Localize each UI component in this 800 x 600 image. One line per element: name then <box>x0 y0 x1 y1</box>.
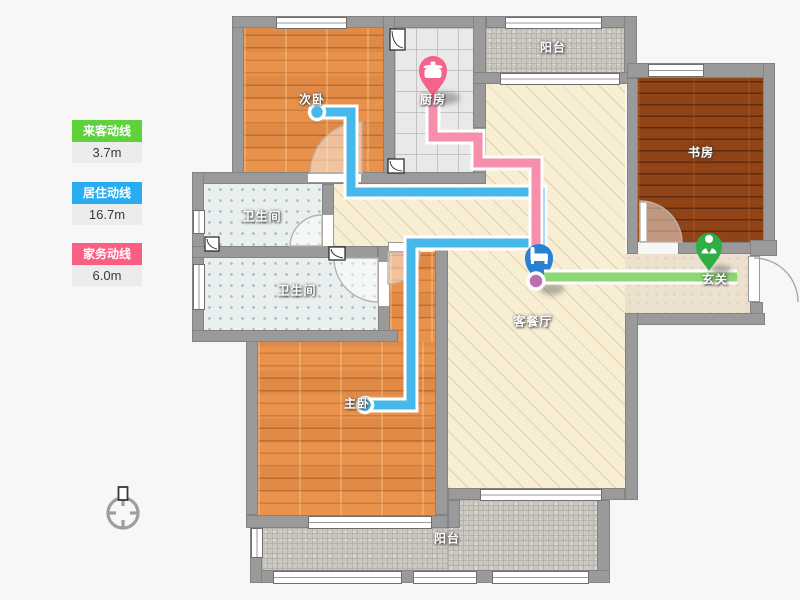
housework-line-end <box>528 273 544 289</box>
room-label-entry: 玄关 <box>702 271 728 288</box>
legend-residence-line: 居住动线 16.7m <box>72 182 142 225</box>
legend-guest-badge[interactable]: 来客动线 <box>72 120 142 142</box>
floorplan-canvas: 次卧 厨房 阳台 书房 卫生间 卫生间 主卧 客餐厅 玄关 阳台 来客动线 3.… <box>0 0 800 600</box>
overlay <box>0 0 800 600</box>
compass-icon <box>108 487 138 528</box>
legend-housework-badge[interactable]: 家务动线 <box>72 243 142 265</box>
legend-residence-badge[interactable]: 居住动线 <box>72 182 142 204</box>
legend-residence-value: 16.7m <box>72 204 142 225</box>
room-label-study: 书房 <box>688 144 714 161</box>
room-label-bath1: 卫生间 <box>242 208 281 225</box>
room-label-balcony-top: 阳台 <box>540 39 566 56</box>
room-label-balcony-bottom: 阳台 <box>434 530 460 547</box>
room-label-bedroom2: 次卧 <box>299 91 325 108</box>
legend-housework-line: 家务动线 6.0m <box>72 243 142 286</box>
legend-guest-value: 3.7m <box>72 142 142 163</box>
room-label-master: 主卧 <box>344 395 370 412</box>
room-label-living: 客餐厅 <box>513 313 552 330</box>
legend-housework-value: 6.0m <box>72 265 142 286</box>
room-label-bath2: 卫生间 <box>277 282 316 299</box>
room-label-kitchen: 厨房 <box>420 91 446 108</box>
legend-guest-line: 来客动线 3.7m <box>72 120 142 163</box>
